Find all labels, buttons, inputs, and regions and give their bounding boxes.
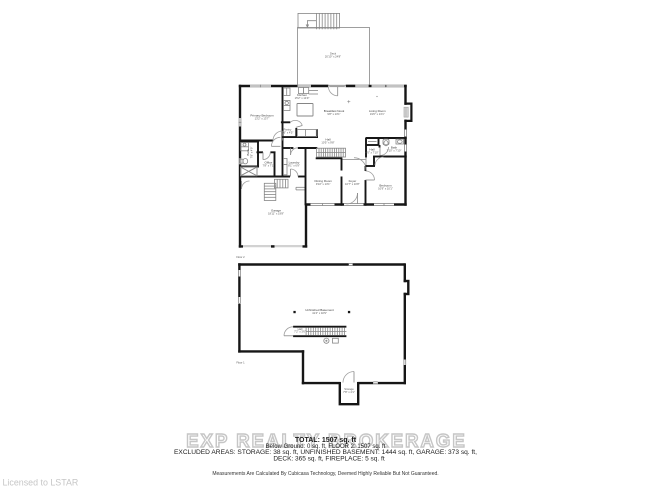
- svg-text:Floor 1: Floor 1: [236, 361, 245, 365]
- svg-text:15'2" x 14'9": 15'2" x 14'9": [295, 96, 310, 100]
- svg-text:7'8" x 4'1": 7'8" x 4'1": [343, 390, 355, 394]
- svg-text:7'8" x 4'0": 7'8" x 4'0": [249, 147, 253, 159]
- svg-text:7'2" x 3'6": 7'2" x 3'6": [294, 330, 306, 334]
- svg-text:Measurements Are Calculated By: Measurements Are Calculated By Cubicasa …: [212, 471, 438, 477]
- svg-text:41'4" x 32'9": 41'4" x 32'9": [312, 311, 327, 315]
- svg-text:8'1" x 6'9": 8'1" x 6'9": [288, 163, 300, 167]
- svg-text:Licensed to LSTAR: Licensed to LSTAR: [3, 477, 79, 487]
- svg-text:DECK: 365 sq. ft, FIREPLACE: 5: DECK: 365 sq. ft, FIREPLACE: 5 sq. ft: [273, 455, 384, 462]
- svg-text:4'0" x 7'10": 4'0" x 7'10": [365, 151, 378, 155]
- svg-text:Floor 2: Floor 2: [236, 255, 245, 259]
- svg-text:10'5" x 9'8": 10'5" x 9'8": [321, 141, 334, 145]
- svg-text:3'6" x 4'5": 3'6" x 4'5": [282, 131, 294, 135]
- svg-text:7'10" x 7'10": 7'10" x 7'10": [387, 149, 402, 153]
- svg-text:9'8" x 13'1": 9'8" x 13'1": [327, 112, 340, 116]
- svg-text:10'7" x 10'8": 10'7" x 10'8": [345, 182, 360, 186]
- svg-text:7'8" x 7'1": 7'8" x 7'1": [263, 163, 275, 167]
- svg-text:20'10" x 24'8": 20'10" x 24'8": [325, 55, 341, 59]
- svg-text:18'11" x 19'8": 18'11" x 19'8": [268, 212, 284, 216]
- svg-text:10'9" x 10'1": 10'9" x 10'1": [378, 186, 393, 190]
- svg-text:19'6" x 13'1": 19'6" x 13'1": [370, 112, 385, 116]
- svg-text:13'2" x 13'7": 13'2" x 13'7": [255, 117, 270, 121]
- svg-text:9'10" x 13'1": 9'10" x 13'1": [316, 182, 331, 186]
